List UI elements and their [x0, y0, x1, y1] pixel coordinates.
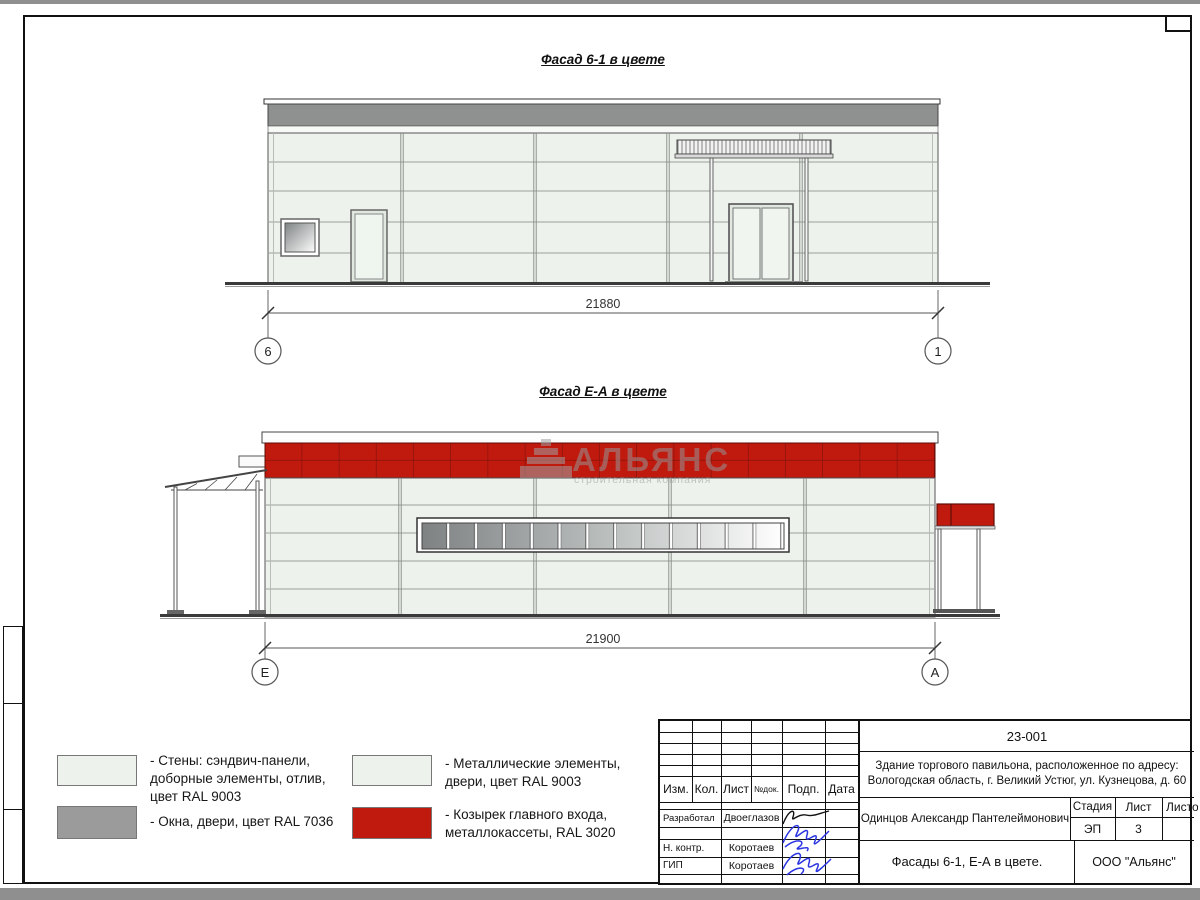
- dimension-value: 21900: [586, 632, 621, 646]
- tb-name-ncontrol: Коротаев: [721, 839, 782, 857]
- tb-line: [660, 743, 860, 744]
- canopy-post: [174, 487, 177, 613]
- tb-col-podp: Подп.: [782, 776, 825, 802]
- right-entrance-canopy: [933, 504, 995, 613]
- legend-swatch-walls: [57, 755, 137, 786]
- tb-col-kol: Кол.: [692, 776, 721, 802]
- axis-label: 1: [934, 344, 941, 359]
- axis-label: Е: [261, 665, 270, 680]
- tb-role-gip: ГИП: [663, 857, 720, 874]
- elevations-canvas: 21880 6 1: [0, 0, 1200, 720]
- axis-bubbles-e-a: [252, 659, 948, 685]
- axis-label: 6: [264, 344, 271, 359]
- tb-sheet-value: 3: [1115, 817, 1162, 840]
- stamp-divider: [4, 809, 22, 810]
- canopy-post: [938, 529, 941, 610]
- tb-name-developer: Двоеглазов: [721, 809, 782, 827]
- tb-line: [660, 765, 860, 766]
- tb-description: Здание торгового павильона, расположенно…: [864, 751, 1190, 797]
- parapet-gray-band: [268, 104, 938, 126]
- single-door: [351, 210, 387, 282]
- tb-name-gip: Коротаев: [721, 857, 782, 874]
- tb-col-ndok: №док.: [751, 776, 782, 802]
- tb-company: ООО "Альянс": [1074, 840, 1194, 883]
- ribbon-window: [417, 518, 789, 552]
- title-block: Изм. Кол. Лист №док. Подп. Дата Разработ…: [658, 719, 1192, 885]
- dimension-value: 21880: [586, 297, 621, 311]
- legend-label-metal: - Металлические элементы, двери, цвет RA…: [445, 755, 655, 791]
- legend-label-walls: - Стены: сэндвич-панели, доборные элемен…: [150, 752, 350, 806]
- tb-col-izm: Изм.: [660, 776, 692, 802]
- canopy-post: [710, 158, 713, 281]
- side-ledge: [239, 456, 265, 467]
- tb-line: [660, 732, 860, 733]
- watermark-tagline: строительная компания: [574, 474, 711, 486]
- tb-doc-number: 23-001: [860, 721, 1194, 751]
- facade-6-1-drawing: [225, 99, 990, 287]
- viewer-edge-bottom: [0, 888, 1200, 900]
- legend-swatch-canopy: [352, 807, 432, 839]
- tb-stage-label: Стадия: [1070, 797, 1115, 817]
- canopy-post: [805, 158, 808, 281]
- legend-swatch-metal: [352, 755, 432, 786]
- double-door: [725, 204, 803, 285]
- tb-sheet-label: Лист: [1115, 797, 1162, 817]
- axis-label: А: [931, 665, 940, 680]
- legend-label-windows: - Окна, двери, цвет RAL 7036: [150, 813, 380, 831]
- tb-col-data: Дата: [825, 776, 858, 802]
- legend-label-canopy: - Козырек главного входа, металлокассеты…: [445, 806, 655, 842]
- approver-signatures-blue: [777, 817, 835, 881]
- tb-role-ncontrol: Н. контр.: [663, 839, 720, 857]
- watermark-name: АЛЬЯНС: [572, 441, 731, 478]
- canopy-post: [977, 529, 980, 610]
- tb-role-developer: Разработал: [663, 809, 720, 827]
- tb-sheets-label: Листов: [1162, 797, 1198, 817]
- tb-line: [660, 802, 860, 803]
- window-small: [281, 219, 319, 256]
- legend-swatch-windows: [57, 806, 137, 839]
- tb-approver: Одинцов Александр Пантелеймонович: [860, 797, 1070, 840]
- tb-stage-value: ЭП: [1070, 817, 1115, 840]
- axis-bubbles-6-1: [255, 338, 951, 364]
- canopy-post: [256, 481, 259, 613]
- tb-sheet-title: Фасады 6-1, Е-А в цвете.: [860, 840, 1074, 883]
- left-lean-to-canopy: [165, 470, 267, 614]
- tb-col-list: Лист: [721, 776, 751, 802]
- tb-line: [660, 754, 860, 755]
